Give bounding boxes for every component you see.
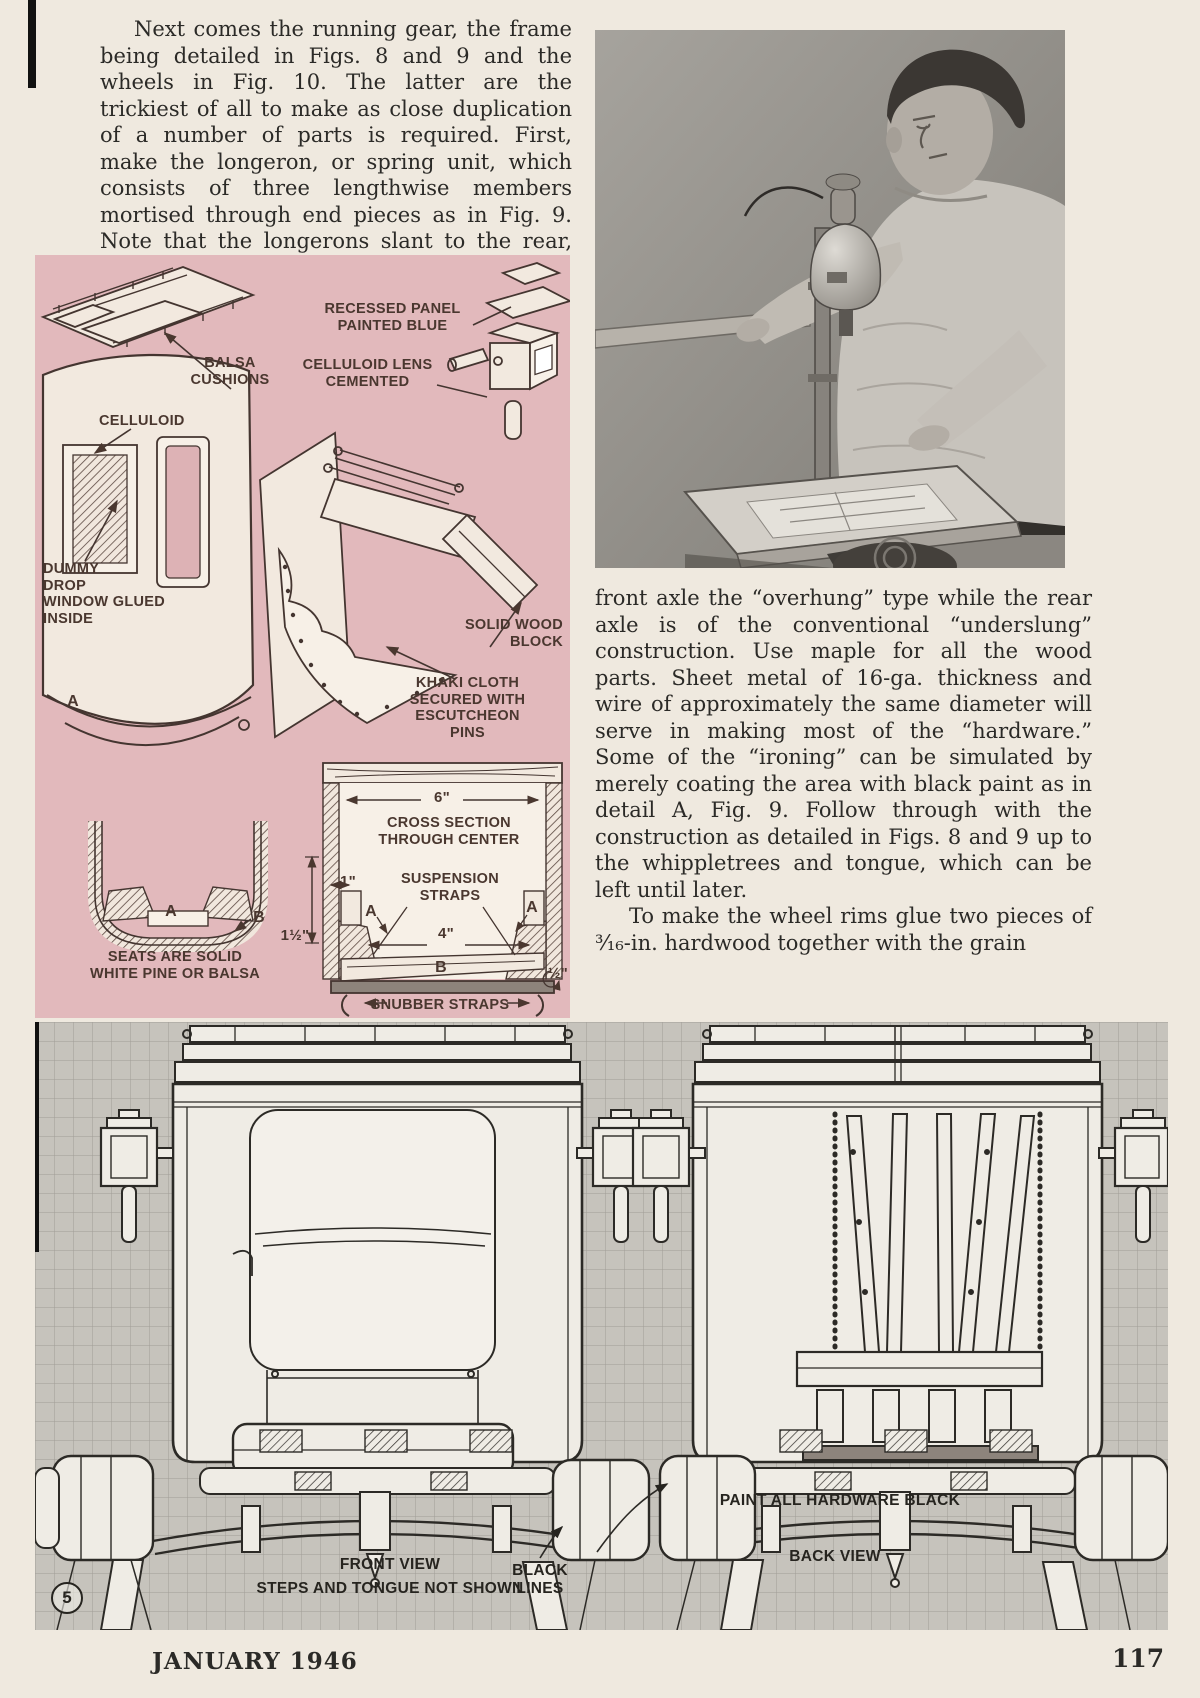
fig5-working-drawing: FRONT VIEW STEPS AND TONGUE NOT SHOWN BL… [35,1022,1168,1630]
drill-motor-bell [811,224,881,310]
photo-illustration [595,30,1065,568]
body-paragraph: Next comes the running gear, the frame b… [100,16,572,281]
label-black-lines: BLACK LINES [485,1562,595,1598]
footer-page-number: 117 [1112,1644,1164,1673]
photo-man-at-drill-press [595,30,1065,568]
label-seat-a: A [161,903,181,921]
fig9-detail-panel: RECESSED PANEL PAINTED BLUE BALSA CUSHIO… [35,255,570,1018]
label-suspension-straps: SUSPENSION STRAPS [380,871,520,904]
footer-issue-date: JANUARY 1946 [152,1648,358,1675]
label-dummy-window: DUMMY DROP WINDOW GLUED INSIDE [43,561,203,628]
label-snubber-straps: SNUBBER STRAPS [365,997,515,1014]
label-dim-half: ½" [543,965,573,982]
label-dim-6in: 6" [425,789,459,806]
label-recessed-panel: RECESSED PANEL PAINTED BLUE [285,301,500,334]
label-dim-4in: 4" [429,925,463,942]
fig5-line-art [35,1022,1168,1630]
label-solid-wood-block: SOLID WOOD BLOCK [425,617,563,650]
registration-mark [28,0,36,88]
label-seats-material: SEATS ARE SOLID WHITE PINE OR BALSA [63,949,287,982]
drill-chuck [839,310,853,336]
label-balsa-cushions: BALSA CUSHIONS [175,355,285,388]
label-back-view: BACK VIEW [690,1548,980,1566]
label-seat-b: B [249,909,269,927]
label-khaki-cloth: KHAKI CLOTH SECURED WITH ESCUTCHEON PINS [390,675,545,742]
left-text-column: Next comes the running gear, the frame b… [100,16,572,281]
label-a-right: A [522,899,542,917]
label-a-left: A [361,903,381,921]
label-paint-hardware: PAINT ALL HARDWARE BLACK [690,1492,990,1510]
figure-number-badge: 5 [51,1582,83,1614]
label-celluloid-lens: CELLULOID LENS CEMENTED [290,357,445,390]
label-cross-section: CROSS SECTION THROUGH CENTER [353,815,545,848]
label-b-center: B [431,959,451,977]
body-paragraph: front axle the “overhung” type while the… [595,585,1092,903]
right-text-column: front axle the “overhung” type while the… [595,585,1092,956]
label-celluloid: CELLULOID [99,413,219,430]
label-dim-1in: 1" [333,873,363,890]
body-paragraph: To make the wheel rims glue two pieces o… [595,903,1092,956]
label-detail-a: A [61,693,85,711]
magazine-page: Next comes the running gear, the frame b… [0,0,1200,1698]
label-dim-1half: 1½" [275,927,315,944]
